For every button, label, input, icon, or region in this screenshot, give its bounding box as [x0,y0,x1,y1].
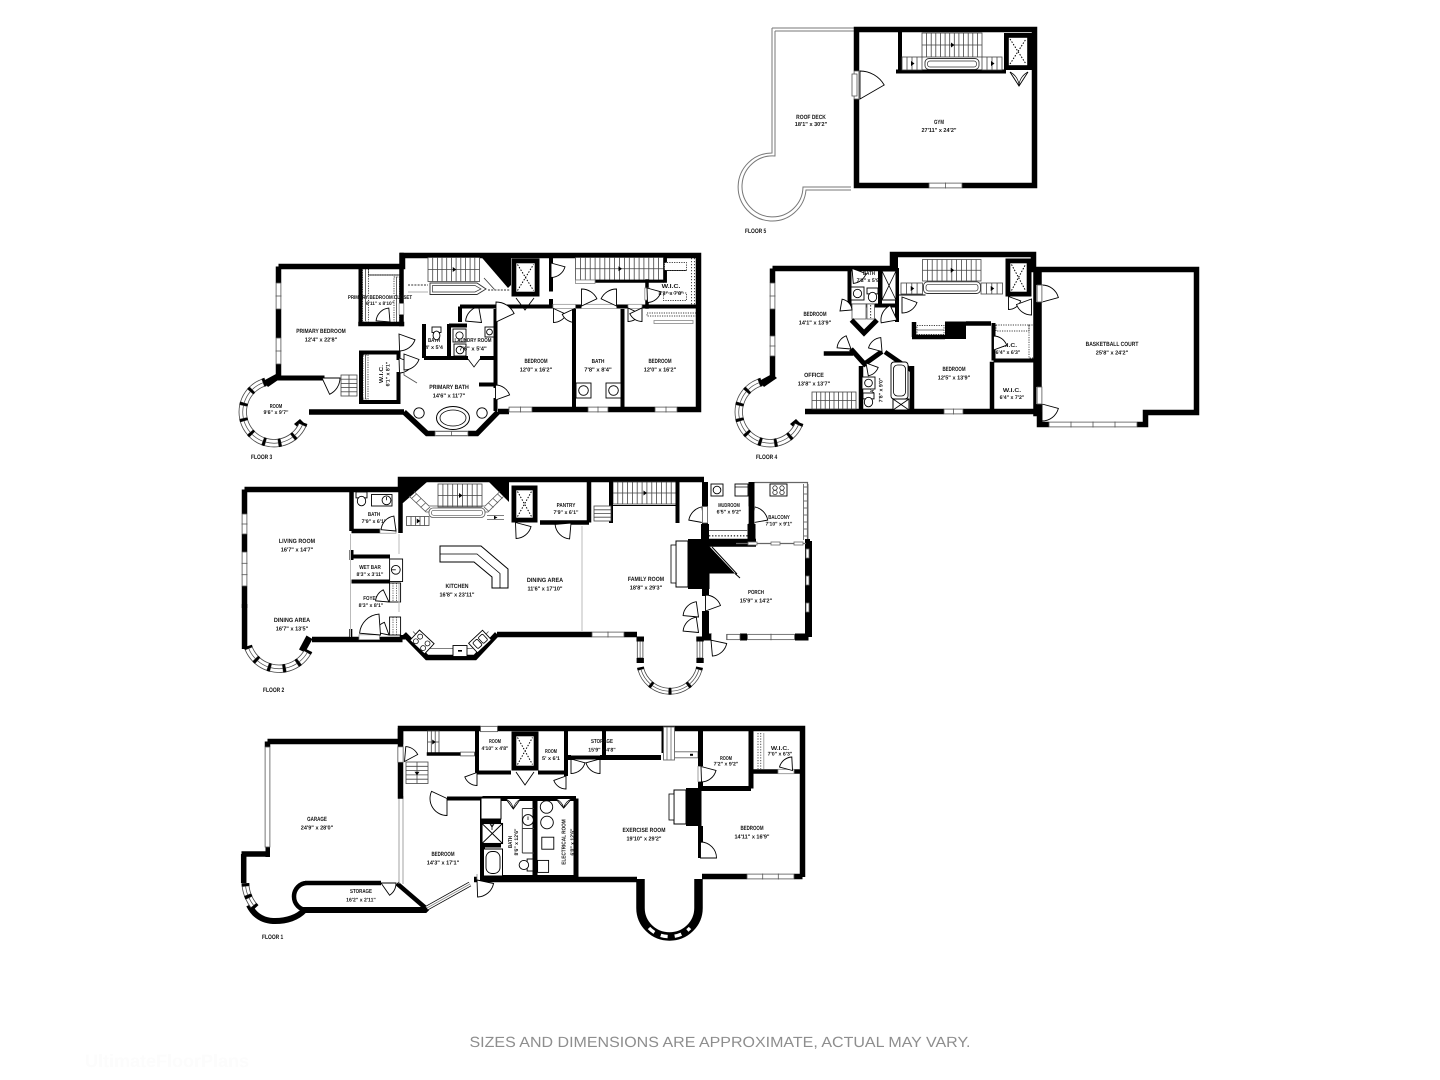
svg-text:8'6" x 12'6": 8'6" x 12'6" [514,828,520,855]
svg-text:BEDROOM: BEDROOM [942,366,965,373]
svg-text:7'6" x 5'4": 7'6" x 5'4" [459,345,487,352]
svg-text:PANTRY: PANTRY [557,503,576,509]
svg-text:BATH: BATH [592,358,605,365]
svg-text:GARAGE: GARAGE [307,816,327,823]
svg-text:8'3" x 3'11": 8'3" x 3'11" [357,572,384,578]
svg-text:WET BAR: WET BAR [359,565,381,571]
svg-text:7'0" x 6'3": 7'0" x 6'3" [768,752,793,758]
svg-text:ROOM: ROOM [270,403,283,410]
svg-text:STORAGE: STORAGE [591,738,613,745]
svg-text:12'0" x 16'2": 12'0" x 16'2" [644,366,677,373]
svg-text:4' x 5'4: 4' x 5'4 [425,345,443,351]
svg-text:16'2" x 2'11": 16'2" x 2'11" [346,897,376,903]
svg-text:4'10" x 4'8": 4'10" x 4'8" [482,746,509,752]
svg-text:19'10" x 29'2": 19'10" x 29'2" [627,835,662,842]
svg-text:ELECTRICAL ROOM: ELECTRICAL ROOM [562,819,568,865]
svg-text:6'4" x 7'2": 6'4" x 7'2" [1000,395,1025,401]
svg-text:LAUNDRY ROOM: LAUNDRY ROOM [455,338,492,344]
svg-text:6'4" x 6'3": 6'4" x 6'3" [996,350,1021,356]
svg-text:5' x 6'1: 5' x 6'1 [542,756,560,762]
svg-text:25'8" x 24'2": 25'8" x 24'2" [1096,349,1129,356]
svg-text:DINING AREA: DINING AREA [274,617,311,624]
svg-text:ROOM: ROOM [545,749,557,755]
svg-text:12'0" x 16'2": 12'0" x 16'2" [520,366,553,373]
svg-text:7'10" x 9'1": 7'10" x 9'1" [766,522,793,528]
svg-text:8'3" x 8'1": 8'3" x 8'1" [359,603,384,609]
svg-text:BALCONY: BALCONY [768,515,790,521]
svg-text:GYM: GYM [934,119,944,126]
svg-text:BEDROOM: BEDROOM [648,358,671,365]
svg-text:ROOM: ROOM [489,739,501,745]
svg-text:BEDROOM: BEDROOM [740,825,763,832]
svg-text:W.I.C.: W.I.C. [1003,388,1022,394]
svg-text:BEDROOM: BEDROOM [524,358,547,365]
svg-text:8'3" x 7'8": 8'3" x 7'8" [658,291,684,297]
svg-text:12'5" x 13'9": 12'5" x 13'9" [938,374,971,381]
svg-text:BATH: BATH [863,271,875,277]
svg-text:FLOOR 5: FLOOR 5 [745,228,767,235]
svg-text:7'9" x 6'1": 7'9" x 6'1" [553,510,579,516]
svg-text:15'9" x 14'2": 15'9" x 14'2" [740,597,773,604]
svg-text:LIVING ROOM: LIVING ROOM [279,538,315,545]
svg-text:7'8" x 9'0": 7'8" x 9'0" [878,377,884,402]
svg-text:6'0" x 12'6": 6'0" x 12'6" [570,828,576,855]
svg-text:18'8" x 29'3": 18'8" x 29'3" [630,584,663,591]
svg-text:16'7" x 14'7": 16'7" x 14'7" [281,546,314,553]
svg-text:OFFICE: OFFICE [804,372,824,379]
svg-text:PORCH: PORCH [748,589,764,596]
svg-text:6'11" x 8'10": 6'11" x 8'10" [366,301,395,307]
svg-text:24'9" x 28'0": 24'9" x 28'0" [301,824,334,831]
svg-text:14'3" x 17'1": 14'3" x 17'1" [427,859,460,866]
svg-text:BEDROOM: BEDROOM [803,311,826,318]
svg-text:18'1" x 30'2": 18'1" x 30'2" [795,121,828,128]
svg-text:W.I.C.: W.I.C. [662,283,681,290]
svg-text:FLOOR 3: FLOOR 3 [251,454,273,461]
svg-text:7'2" x 9'2": 7'2" x 9'2" [714,762,739,768]
svg-text:16'8" x 23'11": 16'8" x 23'11" [440,591,475,598]
svg-text:MUDROOM: MUDROOM [718,503,740,509]
svg-text:FLOOR 2: FLOOR 2 [263,687,285,694]
svg-text:FLOOR 4: FLOOR 4 [756,454,778,461]
svg-text:W.I.C.: W.I.C. [379,364,385,383]
svg-text:14'1" x 13'9": 14'1" x 13'9" [799,319,832,326]
svg-text:15'9" x 4'8": 15'9" x 4'8" [588,747,616,753]
svg-text:UltimateFloorPlans: UltimateFloorPlans [85,1051,249,1071]
svg-text:11'6" x 17'10": 11'6" x 17'10" [528,585,563,592]
svg-text:STORAGE: STORAGE [350,888,372,895]
svg-text:6'5" x 9'2": 6'5" x 9'2" [717,510,742,516]
svg-text:KITCHEN: KITCHEN [445,583,468,590]
svg-text:BASKETBALL COURT: BASKETBALL COURT [1086,341,1139,348]
svg-text:PRIMARY BEDROOM: PRIMARY BEDROOM [296,328,346,335]
svg-text:7'3" x 5'9": 7'3" x 5'9" [857,278,882,284]
svg-text:PRIMARY BEDROOM CLOSET: PRIMARY BEDROOM CLOSET [348,295,413,301]
svg-text:PRIMARY BATH: PRIMARY BATH [429,384,469,391]
svg-text:EXERCISE ROOM: EXERCISE ROOM [623,827,666,834]
svg-text:14'11" x 16'9": 14'11" x 16'9" [735,833,770,840]
svg-text:BEDROOM: BEDROOM [431,851,454,858]
svg-text:6'1" x 8'1": 6'1" x 8'1" [386,361,392,386]
svg-text:7'8" x 8'4": 7'8" x 8'4" [584,366,612,373]
svg-text:FAMILY ROOM: FAMILY ROOM [628,576,664,583]
svg-text:14'6" x 11'7": 14'6" x 11'7" [433,392,466,399]
svg-text:FLOOR 1: FLOOR 1 [262,934,284,941]
svg-text:DINING AREA: DINING AREA [527,577,564,584]
svg-text:ROOF DECK: ROOF DECK [796,114,826,121]
svg-text:16'7" x 13'5": 16'7" x 13'5" [276,625,309,632]
svg-text:27'11" x 24'2": 27'11" x 24'2" [922,127,957,134]
svg-text:13'8" x 13'7": 13'8" x 13'7" [798,380,831,387]
svg-text:12'4" x 22'8": 12'4" x 22'8" [305,336,338,343]
svg-text:SIZES AND DIMENSIONS ARE APPRO: SIZES AND DIMENSIONS ARE APPROXIMATE, AC… [470,1035,971,1051]
svg-text:9'6" x 9'7": 9'6" x 9'7" [263,410,289,416]
svg-text:BATH: BATH [368,512,380,518]
